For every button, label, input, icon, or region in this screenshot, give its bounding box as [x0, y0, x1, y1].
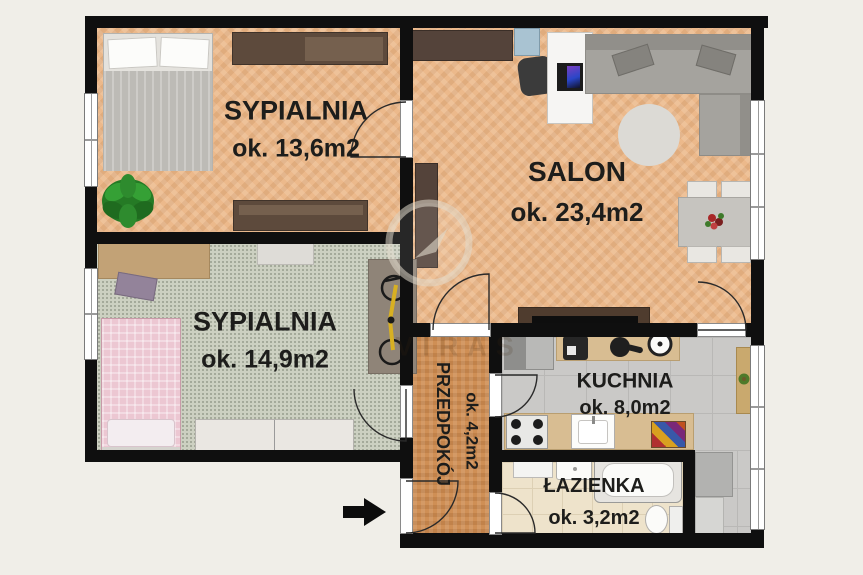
kitchen-rug	[651, 421, 686, 448]
room-name-salon: SALON	[528, 158, 626, 186]
stove	[506, 415, 548, 449]
wall-top	[85, 16, 768, 28]
sofa-backrest	[586, 35, 752, 50]
room-area-bedroom2: ok. 14,9m2	[201, 348, 329, 373]
door-bedroom2	[400, 385, 413, 438]
window-salon	[750, 100, 765, 260]
sofa	[585, 34, 753, 94]
dresser-panel	[239, 205, 363, 215]
floor-plan: VIRAS SYPIALNIA ok. 13,6m2 SALON ok. 23,…	[0, 0, 863, 575]
room-name-hall: PRZEDPOKÓJ	[434, 362, 452, 486]
sofa-chaise	[699, 94, 753, 156]
dining-chair	[721, 246, 751, 263]
dining-chair	[687, 181, 717, 198]
monitor-screen	[567, 66, 580, 88]
kitchen-sink	[571, 414, 615, 449]
coffee-machine	[563, 336, 588, 360]
toilet-cistern	[669, 506, 683, 534]
window-kitchen	[750, 345, 765, 530]
door-hall-kitchen	[489, 373, 502, 417]
watermark-text: VIRAS	[395, 332, 523, 363]
radiator	[514, 28, 540, 56]
wall-shelf	[412, 30, 513, 61]
wall-bedrooms-divider	[85, 232, 413, 244]
room-name-bedroom1: SYPIALNIA	[224, 98, 368, 125]
kitchen-cabinet	[695, 497, 724, 537]
door-bedroom1	[400, 100, 413, 158]
room-area-bathroom: ok. 3,2m2	[548, 508, 639, 528]
wardrobe-bedroom2	[195, 419, 354, 453]
double-bed	[103, 33, 213, 171]
window-bedroom2	[84, 268, 98, 360]
bookshelf	[415, 163, 438, 268]
wardrobe-divider	[274, 420, 275, 452]
coffee-machine-detail	[567, 346, 576, 355]
bed-pillow	[107, 37, 158, 70]
desk-bedroom2	[98, 238, 210, 279]
round-rug	[618, 104, 680, 166]
door-salon-kitchen	[697, 323, 746, 337]
single-bed	[101, 318, 181, 455]
wall-bathroom-right	[683, 450, 695, 545]
bed-blanket	[104, 71, 212, 171]
dining-table	[678, 197, 755, 247]
door-entrance	[400, 478, 413, 534]
single-bed-pillow	[107, 419, 175, 447]
wall-bottom	[400, 533, 764, 548]
dining-chair	[687, 246, 717, 263]
toilet	[645, 505, 668, 534]
sink-drain	[573, 467, 577, 471]
bed-pillow	[159, 37, 210, 70]
wall-bedroom2-bottom	[85, 450, 413, 462]
dresser	[233, 200, 368, 231]
fridge-freezer	[695, 452, 733, 497]
wardrobe	[232, 32, 388, 65]
wall-bathroom-top	[489, 450, 695, 462]
window-bedroom1	[84, 93, 98, 187]
computer-monitor	[557, 63, 583, 91]
door-bathroom	[489, 492, 502, 535]
wardrobe-panel	[305, 37, 383, 61]
wall-center-vertical	[400, 16, 413, 545]
room-area-bedroom1: ok. 13,6m2	[232, 137, 360, 162]
sideboard	[736, 347, 751, 414]
room-name-kitchen: KUCHNIA	[577, 371, 674, 392]
room-name-bedroom2: SYPIALNIA	[193, 309, 337, 336]
room-area-kitchen: ok. 8,0m2	[579, 398, 670, 418]
room-area-hall: ok. 4,2m2	[464, 392, 481, 470]
room-area-salon: ok. 23,4m2	[511, 199, 644, 225]
dining-chair	[721, 181, 751, 198]
room-name-bathroom: ŁAZIENKA	[543, 476, 644, 496]
